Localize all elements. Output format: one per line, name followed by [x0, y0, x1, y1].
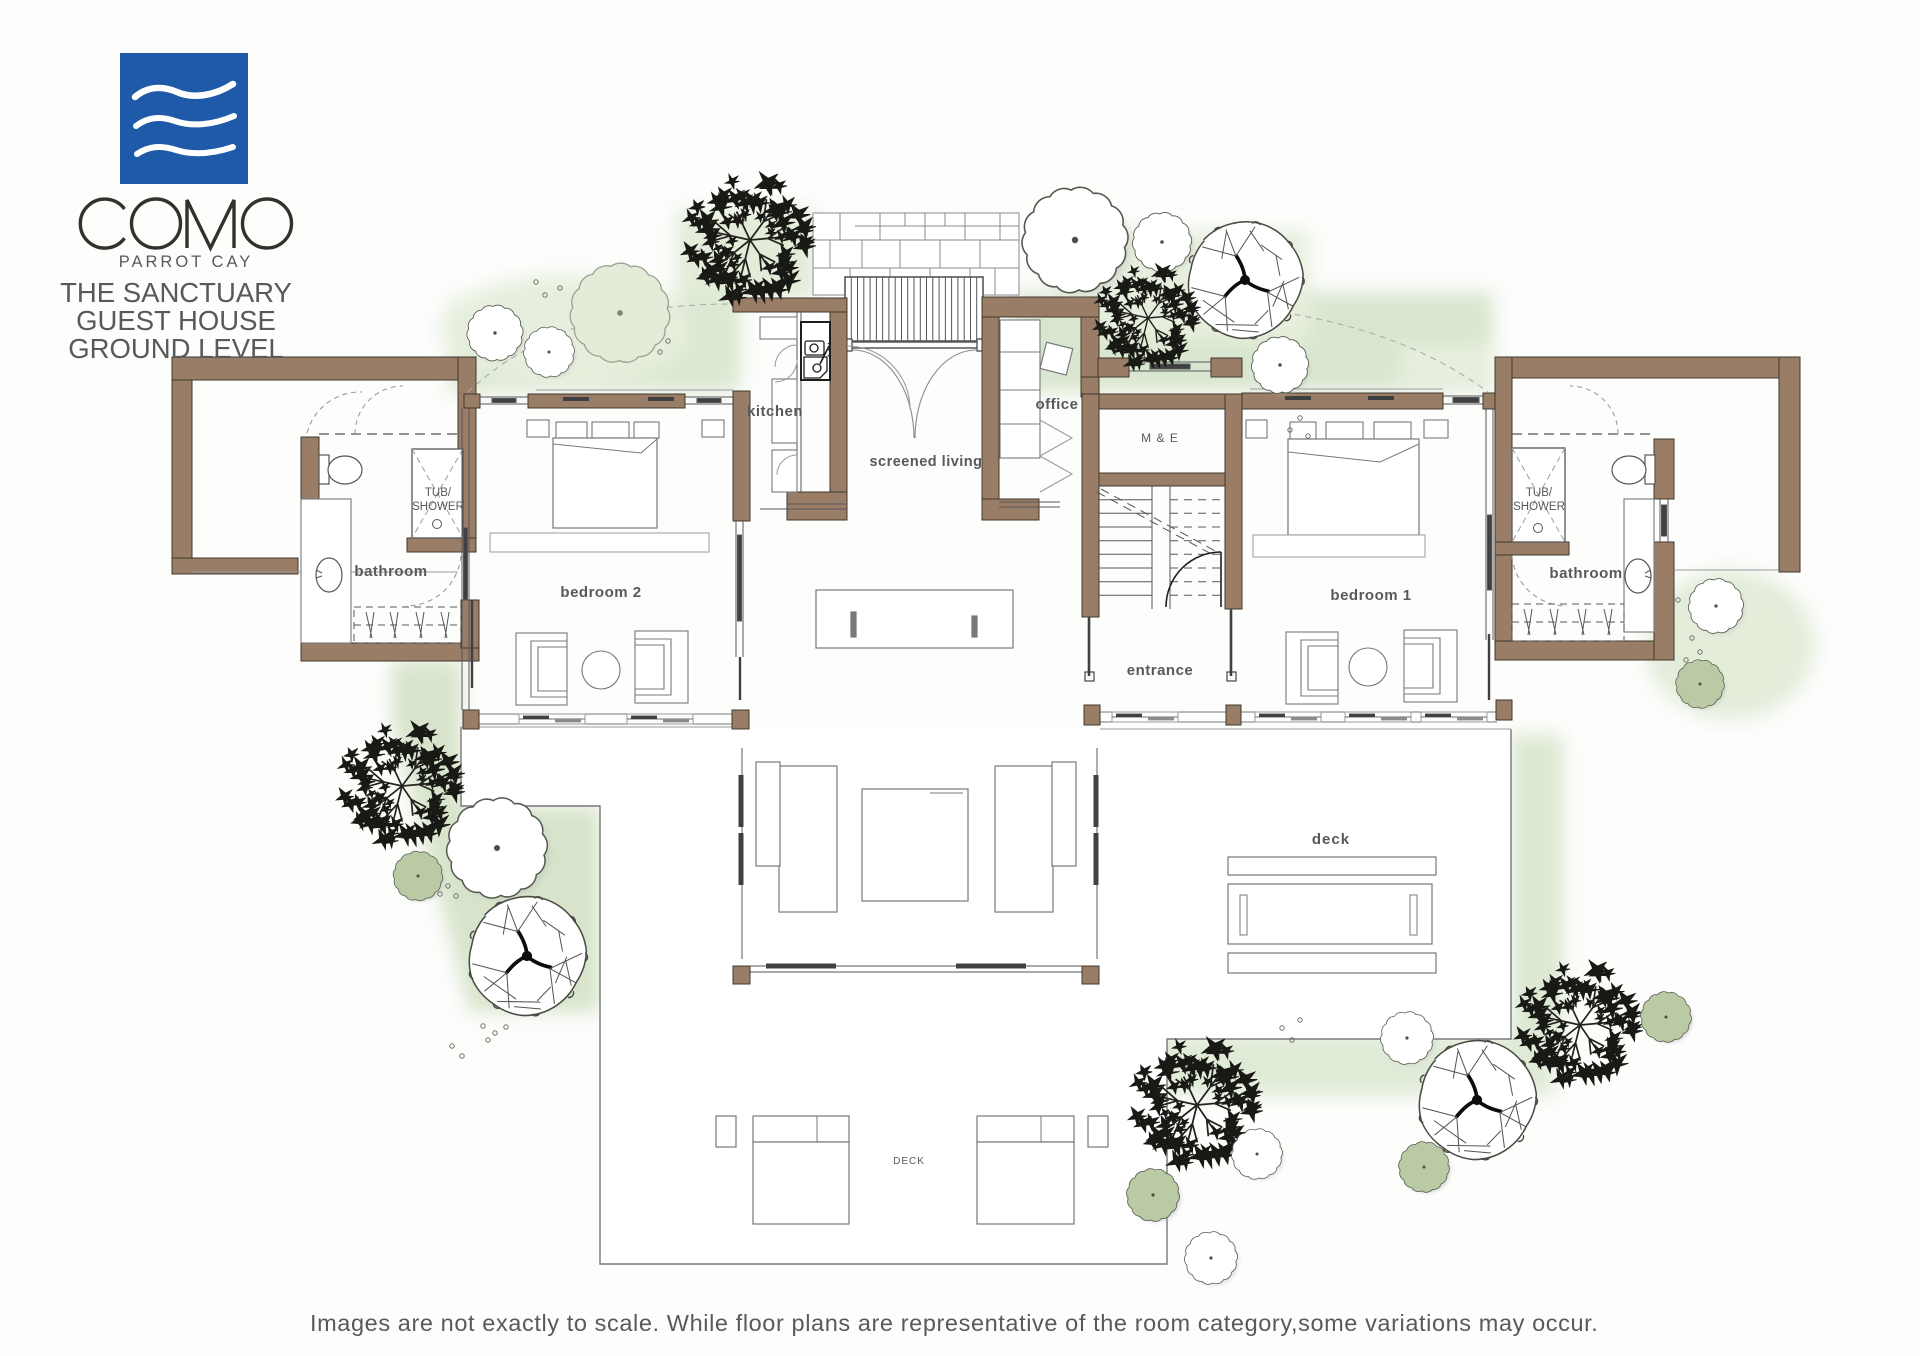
svg-text:DECK: DECK — [893, 1156, 925, 1167]
svg-text:THE SANCTUARY: THE SANCTUARY — [60, 277, 292, 308]
svg-text:GUEST HOUSE: GUEST HOUSE — [76, 305, 276, 336]
svg-text:M & E: M & E — [1141, 431, 1179, 445]
svg-text:Images are not exactly to scal: Images are not exactly to scale. While f… — [310, 1310, 1598, 1336]
svg-text:SHOWER: SHOWER — [412, 501, 464, 513]
svg-text:TUB/: TUB/ — [425, 487, 452, 499]
svg-text:kitchen: kitchen — [747, 403, 803, 420]
svg-text:TUB/: TUB/ — [1526, 487, 1553, 499]
svg-text:GROUND LEVEL: GROUND LEVEL — [68, 333, 283, 364]
svg-text:bathroom: bathroom — [354, 563, 427, 580]
svg-text:office: office — [1035, 396, 1078, 413]
svg-text:bedroom 1: bedroom 1 — [1330, 587, 1411, 604]
svg-text:PARROT CAY: PARROT CAY — [119, 253, 254, 271]
svg-text:screened living: screened living — [869, 454, 982, 470]
svg-text:entrance: entrance — [1127, 662, 1194, 679]
svg-text:bathroom: bathroom — [1549, 565, 1622, 582]
svg-text:deck: deck — [1312, 831, 1350, 848]
svg-text:bedroom 2: bedroom 2 — [560, 584, 641, 601]
svg-text:SHOWER: SHOWER — [1513, 501, 1565, 513]
